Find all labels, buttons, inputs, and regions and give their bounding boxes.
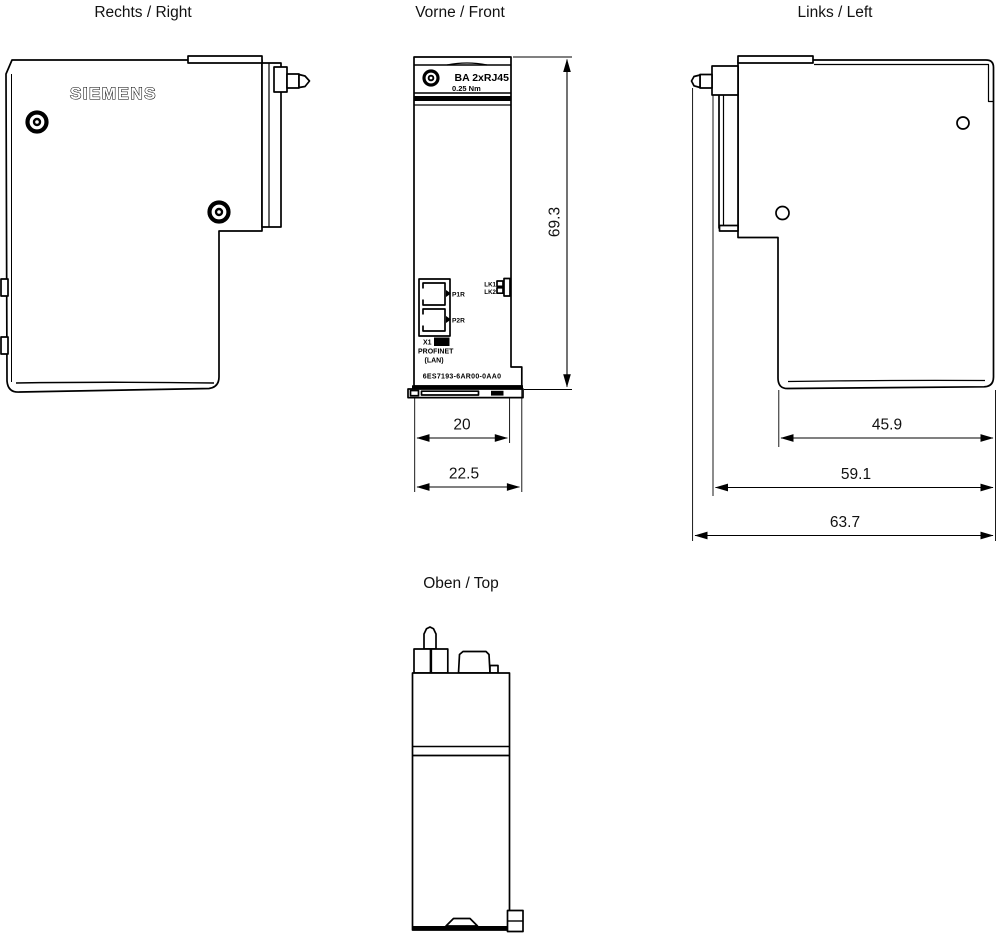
led2-label: LK2: [484, 289, 496, 296]
dim-depth-mid-value: 59.1: [841, 466, 871, 483]
dim-height-value: 69.3: [547, 207, 564, 237]
dimension-width-total: 22.5: [415, 390, 522, 493]
rj45-port-1: [423, 283, 445, 305]
led1-label: LK1: [484, 282, 496, 289]
siemens-logo: SIEMENS: [70, 84, 157, 103]
led1-indicator: [497, 281, 503, 286]
coding-pin: [424, 627, 436, 649]
front-separator-band: [414, 96, 511, 101]
dim-depth-front-value: 45.9: [872, 417, 902, 434]
dimension-width-body: 20: [415, 398, 510, 443]
led-bracket: [504, 279, 510, 297]
right-view-housing: [6, 60, 262, 392]
pin-base: [274, 67, 287, 92]
view-label-right: Rechts / Right: [94, 4, 192, 21]
rj45-port-2: [423, 309, 445, 331]
coding-pin: [287, 74, 310, 88]
dim-depth-total-value: 63.7: [830, 514, 860, 531]
port1-label: P1R: [452, 292, 465, 299]
bus-label: PROFINET: [418, 349, 454, 356]
boss-step: [490, 666, 498, 674]
screw-boss: [459, 652, 491, 674]
top-view: [413, 627, 524, 932]
coding-pin: [692, 75, 713, 89]
right-view-base-line: [16, 382, 214, 383]
torx-screw-icon: [424, 71, 438, 85]
side-tab: [508, 911, 524, 932]
rj45-port-block: [419, 279, 450, 336]
rail-notch-lower: [1, 337, 8, 354]
front-foot-strip: [408, 385, 523, 397]
view-label-front: Vorne / Front: [415, 4, 505, 21]
pin-base-block: [431, 649, 448, 673]
front-view: BA 2xRJ45 0.25 Nm P1R P2R LK1 LK2 X1 PN …: [408, 57, 572, 492]
top-rail: [738, 56, 813, 63]
top-rail: [188, 56, 262, 63]
interface-label: X1: [423, 340, 432, 347]
torque-label: 0.25 Nm: [452, 84, 481, 93]
view-label-top: Oben / Top: [423, 575, 499, 592]
right-view: SIEMENS: [1, 56, 310, 392]
top-view-housing: [413, 673, 510, 930]
lan-label: (LAN): [425, 358, 444, 365]
screw-hole: [957, 117, 969, 129]
module-name: BA 2xRJ45: [455, 72, 510, 84]
view-label-left: Links / Left: [798, 4, 874, 21]
article-number: 6ES7193-6AR00-0AA0: [423, 374, 502, 381]
interface-type: PN: [437, 340, 447, 347]
torx-screw-icon: [210, 203, 229, 222]
dim-width-total-value: 22.5: [449, 466, 479, 483]
left-view: 45.9 59.1 63.7: [692, 56, 996, 541]
dimension-height: 69.3: [513, 57, 572, 390]
port2-label: P2R: [452, 318, 465, 325]
dimensional-drawing: Rechts / Right Vorne / Front Links / Lef…: [0, 0, 1000, 936]
screw-hole: [776, 207, 789, 220]
pin-base: [712, 66, 738, 95]
dim-width-body-value: 20: [453, 417, 471, 434]
dimension-depth-front: 45.9: [779, 390, 996, 447]
rail-notch-upper: [1, 279, 8, 296]
torx-screw-icon: [28, 113, 47, 132]
led2-indicator: [497, 288, 503, 293]
pin-base-block: [414, 649, 431, 673]
left-view-housing: [738, 60, 994, 389]
link-led-group: LK1 LK2: [484, 279, 510, 297]
